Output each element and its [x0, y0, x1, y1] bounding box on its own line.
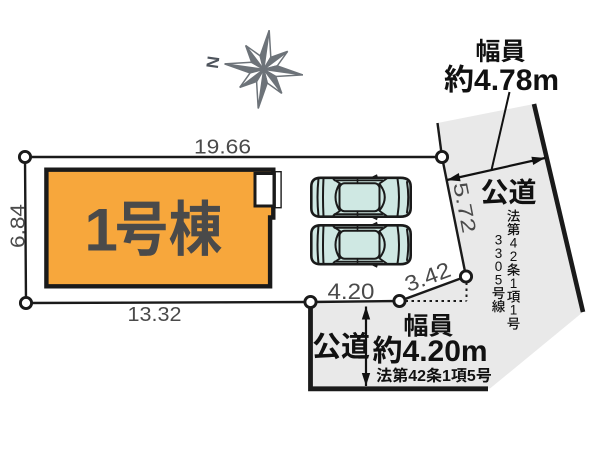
svg-text:6.84: 6.84 [8, 204, 30, 248]
svg-text:1: 1 [510, 303, 518, 318]
svg-text:4.78m: 4.78m [474, 64, 559, 97]
svg-text:1: 1 [510, 276, 518, 291]
svg-text:5: 5 [495, 272, 503, 287]
svg-text:5: 5 [467, 368, 476, 385]
svg-text:2: 2 [510, 249, 518, 264]
svg-text:1: 1 [442, 368, 451, 385]
svg-text:19.66: 19.66 [194, 136, 251, 158]
svg-text:4.20: 4.20 [328, 279, 375, 304]
svg-text:N: N [203, 55, 224, 70]
svg-text:1: 1 [85, 197, 118, 264]
svg-text:42: 42 [408, 368, 426, 385]
svg-text:4.20m: 4.20m [403, 335, 488, 368]
svg-text:13.32: 13.32 [128, 304, 182, 326]
